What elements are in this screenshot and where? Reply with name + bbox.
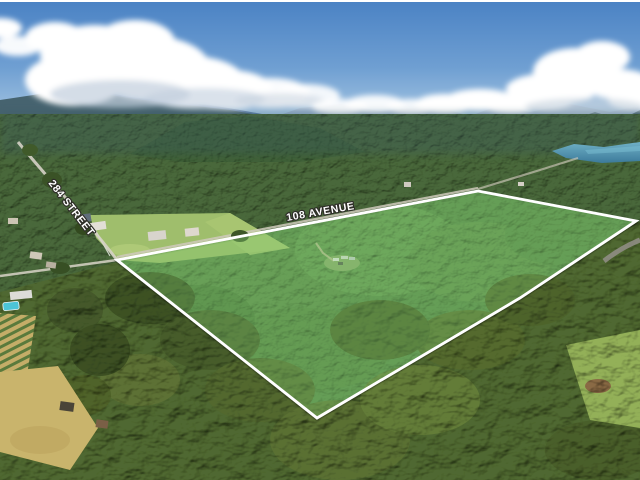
photo-top-border bbox=[0, 0, 640, 2]
aerial-property-photo: 108 AVENUE 284 STREET bbox=[0, 0, 640, 480]
atmosphere-band bbox=[0, 112, 640, 154]
field-shed bbox=[96, 419, 109, 429]
dirt-patch bbox=[585, 379, 611, 393]
swimming-pool bbox=[3, 301, 20, 311]
